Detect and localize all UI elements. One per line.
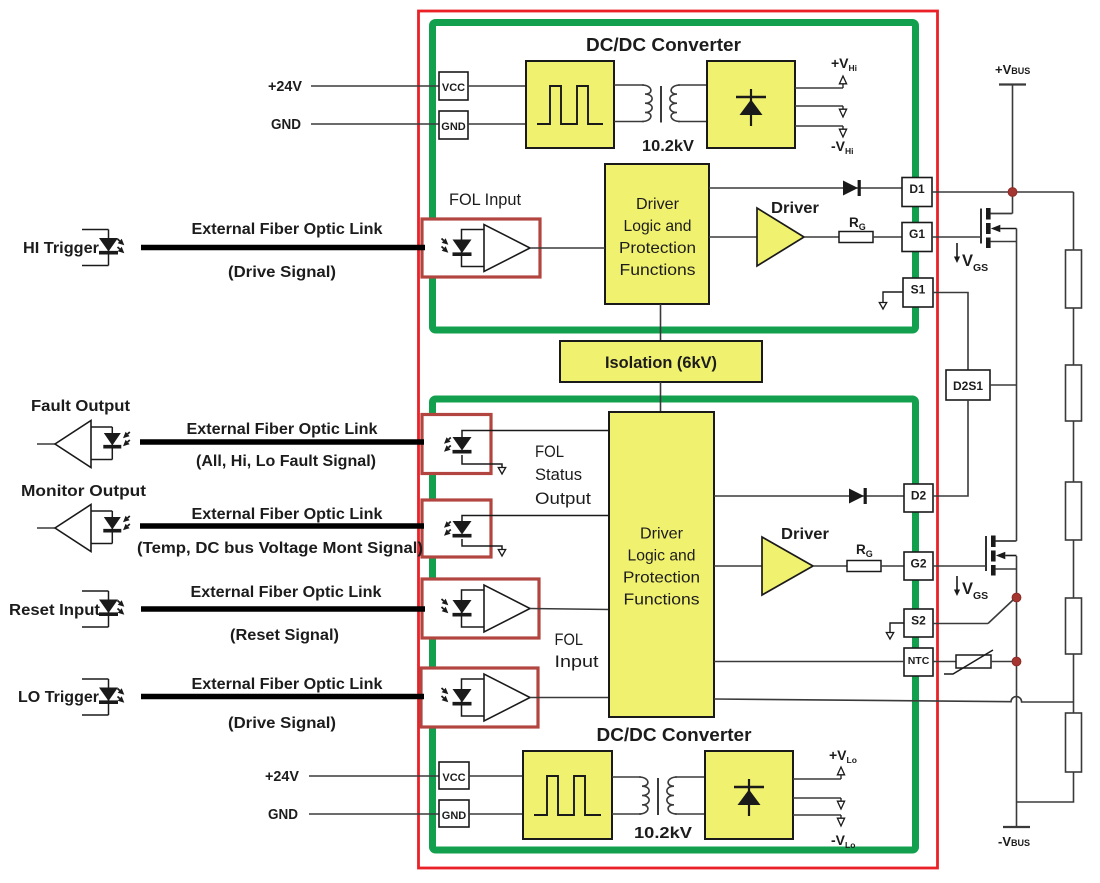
svg-text:-VBUS: -VBUS xyxy=(998,834,1030,849)
svg-text:HI Trigger: HI Trigger xyxy=(23,240,99,257)
svg-text:Output: Output xyxy=(535,490,591,508)
svg-text:NTC: NTC xyxy=(908,655,930,667)
svg-text:Functions: Functions xyxy=(624,592,700,609)
svg-text:DC/DC Converter: DC/DC Converter xyxy=(597,724,752,745)
svg-text:10.2kV: 10.2kV xyxy=(634,825,693,842)
svg-text:Driver: Driver xyxy=(640,526,684,543)
svg-text:(All, Hi, Lo Fault Signal): (All, Hi, Lo Fault Signal) xyxy=(196,453,376,470)
svg-text:Driver: Driver xyxy=(636,196,680,213)
svg-text:LO Trigger: LO Trigger xyxy=(18,689,99,706)
svg-text:VGS: VGS xyxy=(962,580,988,602)
svg-text:Isolation (6kV): Isolation (6kV) xyxy=(605,354,717,372)
svg-text:External Fiber Optic Link: External Fiber Optic Link xyxy=(192,221,383,238)
svg-text:G2: G2 xyxy=(910,557,926,571)
svg-text:Protection: Protection xyxy=(623,570,700,587)
svg-text:+VHi: +VHi xyxy=(831,55,857,73)
svg-text:(Drive Signal): (Drive Signal) xyxy=(228,264,336,281)
svg-text:RG: RG xyxy=(856,542,873,559)
svg-text:FOL: FOL xyxy=(555,631,584,649)
svg-text:+VLo: +VLo xyxy=(829,747,857,765)
svg-text:+24V: +24V xyxy=(265,769,299,785)
svg-text:S1: S1 xyxy=(911,283,926,297)
svg-text:Reset Input: Reset Input xyxy=(9,602,100,619)
svg-text:GND: GND xyxy=(441,121,466,133)
svg-text:RG: RG xyxy=(849,215,866,232)
svg-text:GND: GND xyxy=(268,807,298,823)
svg-text:Logic and: Logic and xyxy=(624,218,692,235)
svg-text:External Fiber Optic Link: External Fiber Optic Link xyxy=(192,676,383,693)
svg-text:+24V: +24V xyxy=(268,79,302,95)
svg-text:Status: Status xyxy=(535,466,582,484)
svg-text:D2S1: D2S1 xyxy=(953,379,983,393)
svg-text:External Fiber Optic Link: External Fiber Optic Link xyxy=(187,421,378,438)
svg-text:Driver: Driver xyxy=(771,200,819,217)
svg-text:VGS: VGS xyxy=(962,252,988,274)
svg-text:Monitor Output: Monitor Output xyxy=(21,483,146,500)
svg-text:Input: Input xyxy=(555,653,599,671)
svg-text:(Reset Signal): (Reset Signal) xyxy=(230,627,339,644)
svg-text:DC/DC Converter: DC/DC Converter xyxy=(586,34,741,55)
svg-text:Protection: Protection xyxy=(619,240,696,257)
svg-text:Functions: Functions xyxy=(620,262,696,279)
svg-text:GND: GND xyxy=(271,117,301,133)
svg-text:FOL: FOL xyxy=(535,443,564,461)
svg-text:External Fiber Optic Link: External Fiber Optic Link xyxy=(191,584,382,601)
svg-text:G1: G1 xyxy=(909,227,925,241)
svg-text:External Fiber Optic Link: External Fiber Optic Link xyxy=(192,506,383,523)
svg-text:S2: S2 xyxy=(911,614,926,628)
svg-text:VCC: VCC xyxy=(442,82,465,94)
svg-text:Logic and: Logic and xyxy=(628,548,696,565)
svg-text:D2: D2 xyxy=(911,489,927,503)
svg-text:-VHi: -VHi xyxy=(831,138,854,156)
svg-text:Driver: Driver xyxy=(781,526,829,543)
svg-text:10.2kV: 10.2kV xyxy=(642,138,695,155)
svg-text:(Temp, DC bus Voltage Mont Sig: (Temp, DC bus Voltage Mont Signal) xyxy=(137,540,423,557)
svg-text:+VBUS: +VBUS xyxy=(995,62,1030,77)
svg-text:(Drive Signal): (Drive Signal) xyxy=(228,715,336,732)
svg-text:VCC: VCC xyxy=(442,772,465,784)
svg-text:FOL Input: FOL Input xyxy=(449,191,521,209)
svg-text:D1: D1 xyxy=(909,182,925,196)
svg-text:GND: GND xyxy=(442,810,467,822)
svg-text:Fault Output: Fault Output xyxy=(31,398,130,415)
svg-text:-VLo: -VLo xyxy=(831,832,855,850)
